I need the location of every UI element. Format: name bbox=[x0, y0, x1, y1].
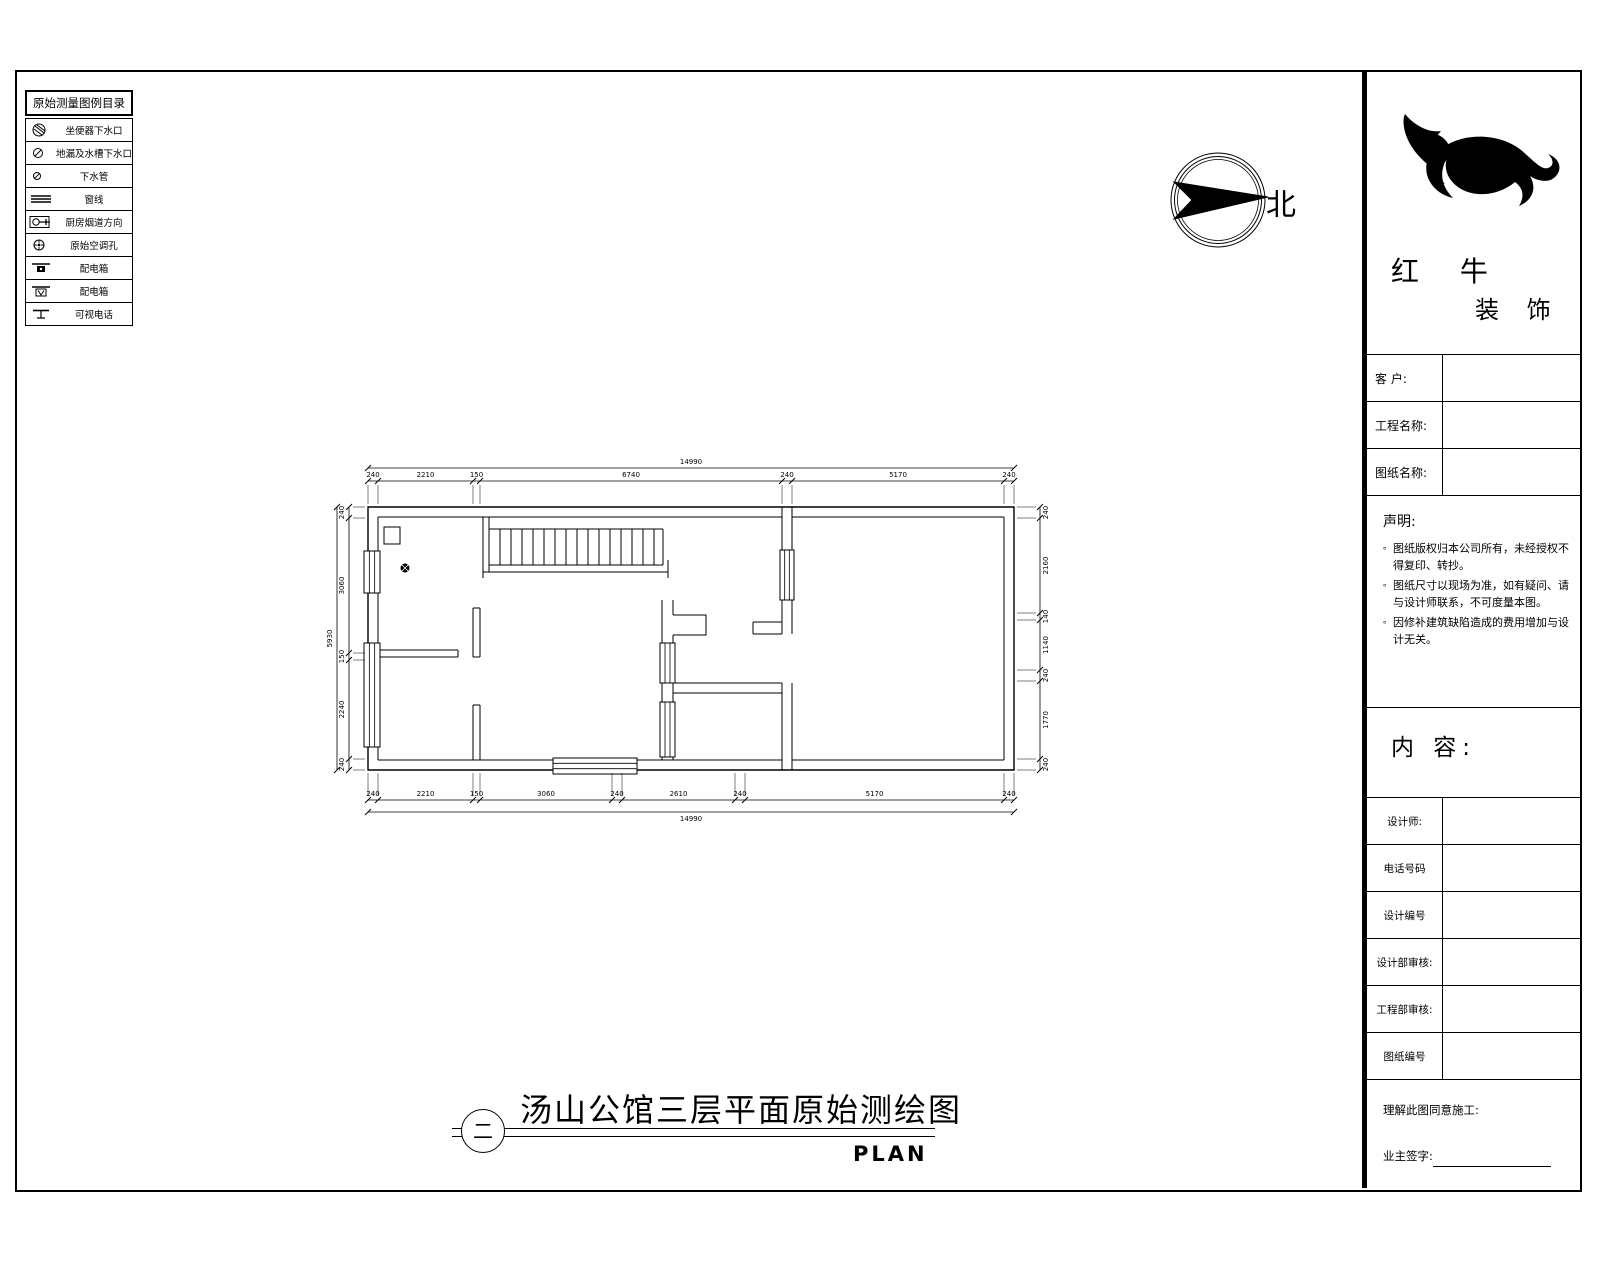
title-block-row: 设计师: bbox=[1367, 798, 1582, 845]
staircase bbox=[483, 517, 668, 578]
dimension-label: 240 bbox=[1042, 758, 1050, 771]
window-symbol bbox=[553, 758, 637, 774]
title-block-row: 客 户: bbox=[1367, 355, 1582, 402]
row-value bbox=[1443, 939, 1582, 985]
dimension-label: 5170 bbox=[889, 471, 907, 479]
drawing-index-badge: 二 bbox=[461, 1109, 505, 1153]
statement-text: 因修补建筑缺陷造成的费用增加与设计无关。 bbox=[1393, 615, 1574, 648]
dimension-label: 240 bbox=[733, 790, 746, 798]
dimension-label: 2210 bbox=[417, 790, 435, 798]
row-value bbox=[1443, 986, 1582, 1032]
row-value bbox=[1443, 1033, 1582, 1079]
drawing-title: 汤山公馆三层平面原始测绘图 bbox=[520, 1085, 940, 1131]
dimension-label: 240 bbox=[366, 790, 379, 798]
dimension-label: 150 bbox=[338, 650, 346, 663]
dimension-label: 2160 bbox=[1042, 557, 1050, 575]
inner-walls bbox=[378, 507, 1004, 770]
dimension-label: 5170 bbox=[866, 790, 884, 798]
brand-subname: 装 饰 bbox=[1475, 290, 1561, 325]
dimension-label: 3060 bbox=[338, 577, 346, 595]
field-rows: 客 户:工程名称:图纸名称: bbox=[1367, 355, 1582, 496]
dimension-label: 240 bbox=[1042, 506, 1050, 519]
signature-line bbox=[1433, 1166, 1551, 1167]
statement-item: 。图纸尺寸以现场为准，如有疑问、请与设计师联系，不可度量本图。 bbox=[1383, 578, 1574, 611]
statement-text: 图纸尺寸以现场为准，如有疑问、请与设计师联系，不可度量本图。 bbox=[1393, 578, 1574, 611]
row-value bbox=[1443, 845, 1582, 891]
window-symbol bbox=[780, 550, 794, 600]
dimension-label: 2240 bbox=[338, 701, 346, 719]
title-block-row: 设计编号 bbox=[1367, 892, 1582, 939]
title-block-row: 工程部审核: bbox=[1367, 986, 1582, 1033]
dimension-label: 150 bbox=[470, 790, 483, 798]
statement-item: 。图纸版权归本公司所有，未经授权不得复印、转抄。 bbox=[1383, 541, 1574, 574]
stair-treads bbox=[500, 529, 654, 565]
dimension-lines: 1499024022101506740240517024024022101503… bbox=[326, 458, 1050, 823]
dimension-label: 240 bbox=[338, 758, 346, 771]
title-block-row: 设计部审核: bbox=[1367, 939, 1582, 986]
dimension-label: 150 bbox=[470, 471, 483, 479]
row-value bbox=[1443, 449, 1582, 495]
dimension-label: 1140 bbox=[1042, 636, 1050, 654]
title-block-row: 工程名称: bbox=[1367, 402, 1582, 449]
dimension-label: 1770 bbox=[1042, 711, 1050, 729]
window-symbol bbox=[660, 643, 675, 683]
dimension-label: 240 bbox=[780, 471, 793, 479]
ac-hole-symbol bbox=[401, 564, 410, 573]
plan-label: PLAN bbox=[853, 1142, 928, 1166]
dimension-label: 2610 bbox=[670, 790, 688, 798]
brand-section: 红 牛 装 饰 bbox=[1367, 72, 1582, 355]
content-label: 内 容: bbox=[1391, 728, 1476, 762]
content-section: 内 容: bbox=[1367, 708, 1582, 798]
outer-walls bbox=[368, 507, 1014, 770]
title-underline bbox=[452, 1128, 935, 1137]
dimension-label: 140 bbox=[1042, 610, 1050, 623]
statement-bullet: 。 bbox=[1383, 578, 1393, 611]
row-value bbox=[1443, 892, 1582, 938]
row-value bbox=[1443, 355, 1582, 401]
title-block-row: 电话号码 bbox=[1367, 845, 1582, 892]
dimension-label: 6740 bbox=[622, 471, 640, 479]
row-label: 设计部审核: bbox=[1367, 939, 1443, 985]
dimension-label: 240 bbox=[338, 506, 346, 519]
window-symbol bbox=[660, 702, 675, 757]
dimension-label: 5930 bbox=[326, 630, 334, 648]
row-label: 客 户: bbox=[1367, 355, 1443, 401]
owner-signature-label: 业主签字: bbox=[1383, 1148, 1433, 1164]
signoff-rows: 设计师:电话号码设计编号设计部审核:工程部审核:图纸编号 bbox=[1367, 798, 1582, 1080]
row-label: 设计师: bbox=[1367, 798, 1443, 844]
title-block-row: 图纸名称: bbox=[1367, 449, 1582, 496]
title-block-row: 图纸编号 bbox=[1367, 1033, 1582, 1080]
row-label: 工程部审核: bbox=[1367, 986, 1443, 1032]
dimension-label: 240 bbox=[1002, 471, 1015, 479]
footer-section: 理解此图同意施工: 业主签字: bbox=[1367, 1080, 1582, 1188]
cad-sheet: { "legend": { "title": "原始测量图例目录", "item… bbox=[0, 0, 1600, 1280]
dimension-label: 14990 bbox=[680, 458, 702, 466]
row-value bbox=[1443, 402, 1582, 448]
statement-bullet: 。 bbox=[1383, 541, 1393, 574]
statement-title: 声明: bbox=[1383, 511, 1574, 531]
north-arrow bbox=[1174, 182, 1268, 219]
dimension-label: 240 bbox=[610, 790, 623, 798]
window-symbol bbox=[364, 643, 380, 747]
statement-bullet: 。 bbox=[1383, 615, 1393, 648]
dimension-label: 14990 bbox=[680, 815, 702, 823]
dimension-label: 240 bbox=[1002, 790, 1015, 798]
dimension-label: 240 bbox=[366, 471, 379, 479]
north-label: 北 bbox=[1266, 180, 1296, 224]
title-block: 红 牛 装 饰 客 户:工程名称:图纸名称: 声明: 。图纸版权归本公司所有，未… bbox=[1362, 72, 1587, 1188]
window-symbol bbox=[364, 551, 380, 593]
row-label: 图纸编号 bbox=[1367, 1033, 1443, 1079]
window-symbols bbox=[364, 550, 794, 774]
brand-logo-icon bbox=[1367, 102, 1582, 262]
row-value bbox=[1443, 798, 1582, 844]
statement-section: 声明: 。图纸版权归本公司所有，未经授权不得复印、转抄。。图纸尺寸以现场为准，如… bbox=[1367, 497, 1582, 708]
dimension-label: 3060 bbox=[537, 790, 555, 798]
row-label: 电话号码 bbox=[1367, 845, 1443, 891]
dimension-label: 2210 bbox=[417, 471, 435, 479]
brand-name: 红 牛 bbox=[1391, 250, 1504, 290]
row-label: 工程名称: bbox=[1367, 402, 1443, 448]
statement-text: 图纸版权归本公司所有，未经授权不得复印、转抄。 bbox=[1393, 541, 1574, 574]
statement-item: 。因修补建筑缺陷造成的费用增加与设计无关。 bbox=[1383, 615, 1574, 648]
row-label: 设计编号 bbox=[1367, 892, 1443, 938]
approval-label: 理解此图同意施工: bbox=[1383, 1102, 1479, 1118]
row-label: 图纸名称: bbox=[1367, 449, 1443, 495]
dimension-label: 240 bbox=[1042, 669, 1050, 682]
